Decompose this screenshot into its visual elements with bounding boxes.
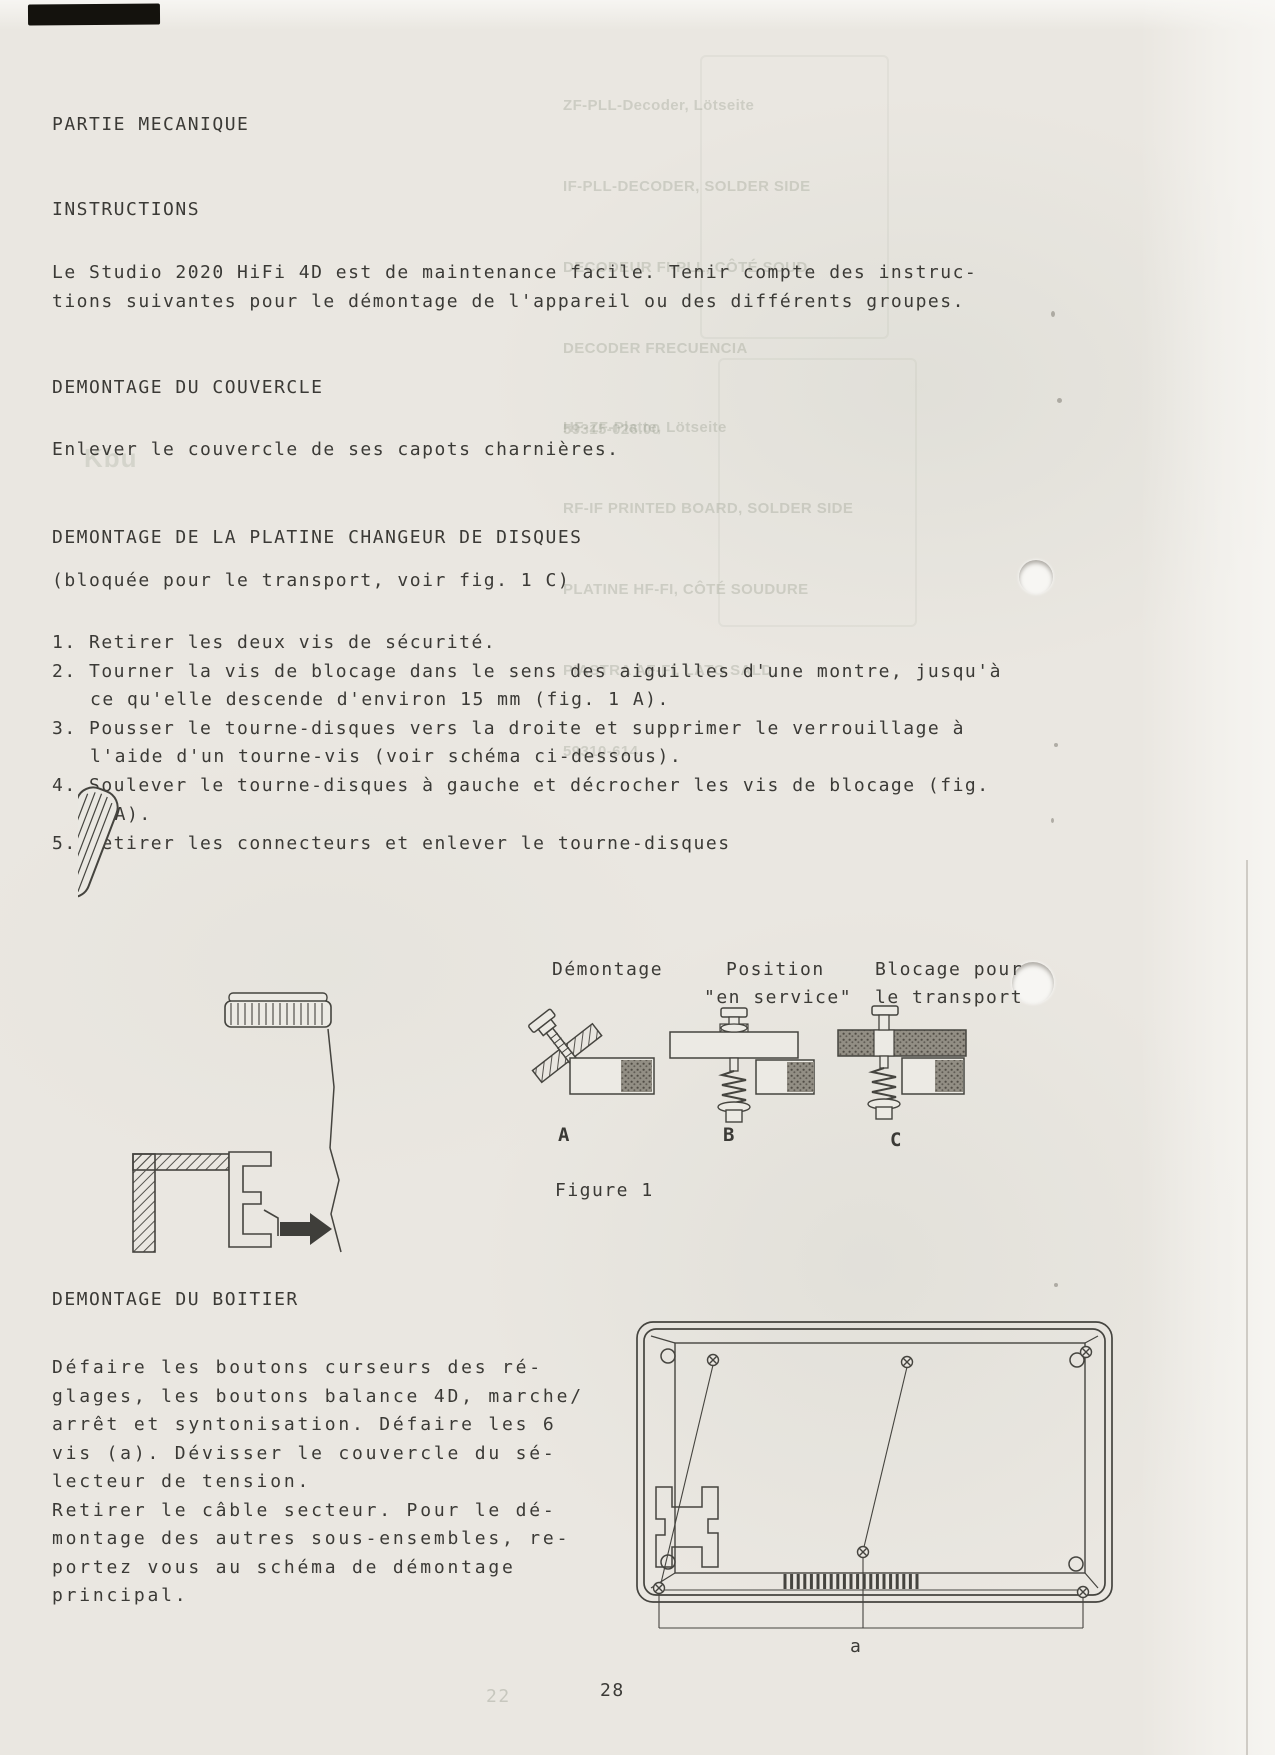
section-note: (bloquée pour le transport, voir fig. 1 … — [52, 570, 570, 592]
figure1-label-a: Démontage — [552, 959, 663, 981]
body-line: Enlever le couvercle de ses capots charn… — [52, 439, 620, 461]
body-line: glages, les boutons balance 4D, marche/ — [52, 1386, 584, 1408]
figure1-caption: Figure 1 — [555, 1180, 654, 1202]
bleedthrough-page-number: 22 — [486, 1686, 511, 1707]
bleedthrough-line: PLATINE HF-FI, CÔTÉ SOUDURE — [563, 576, 853, 603]
chassis-wall-section — [133, 1152, 278, 1252]
step-line: 3. Pousser le tourne-disques vers la dro… — [52, 718, 965, 740]
body-line: principal. — [52, 1585, 188, 1607]
figure1-label-b1: Position — [726, 959, 825, 981]
step-line: l'aide d'un tourne-vis (voir schéma ci-d… — [90, 746, 682, 768]
section-title-demontage-couvercle: DEMONTAGE DU COUVERCLE — [52, 377, 323, 399]
body-line: Défaire les boutons curseurs des ré- — [52, 1357, 543, 1379]
scan-edge-mark — [28, 4, 160, 26]
knurled-wheel-icon — [225, 993, 331, 1027]
body-line: tions suivantes pour le démontage de l'a… — [52, 291, 965, 313]
body-line: vis (a). Dévisser le couvercle du sé- — [52, 1443, 557, 1465]
screwdriver-unlock-figure — [78, 782, 368, 1262]
section-title-demontage-platine: DEMONTAGE DE LA PLATINE CHANGEUR DE DISQ… — [52, 527, 583, 549]
bleedthrough-line: HF-ZF-Platte, Lötseite — [563, 414, 853, 441]
figure1-label-c1: Blocage pour — [875, 959, 1023, 981]
page-edge-highlight — [1140, 0, 1275, 1755]
body-line: Le Studio 2020 HiFi 4D est de maintenanc… — [52, 262, 977, 284]
step-line: 1. Retirer les deux vis de sécurité. — [52, 632, 496, 654]
body-line: arrêt et syntonisation. Défaire les 6 — [52, 1414, 557, 1436]
screw-diagram-a — [509, 1002, 654, 1107]
body-line: portez vous au schéma de démontage — [52, 1557, 516, 1579]
chassis-rear-diagram — [618, 1312, 1118, 1662]
figure1-screw-diagrams — [498, 1002, 1018, 1140]
scan-speck — [1054, 1283, 1058, 1287]
scan-speck — [1051, 311, 1055, 317]
panel-edge-lines — [328, 1029, 341, 1252]
bleedthrough-line: IF-PLL-DECODER, SOLDER SIDE — [563, 173, 812, 200]
bleedthrough-line: DECODER FRECUENCIA — [563, 335, 812, 362]
body-line: Retirer le câble secteur. Pour le dé- — [52, 1500, 557, 1522]
scan-speck — [1051, 818, 1054, 823]
body-line: montage des autres sous-ensembles, re- — [52, 1528, 570, 1550]
page-number: 28 — [600, 1680, 625, 1702]
corner-holes — [661, 1349, 1084, 1571]
section-title-instructions: INSTRUCTIONS — [52, 199, 200, 221]
screwdriver-icon — [78, 782, 123, 1208]
screw-markers — [654, 1347, 1092, 1598]
body-line: lecteur de tension. — [52, 1471, 311, 1493]
step-line: ce qu'elle descende d'environ 15 mm (fig… — [90, 689, 670, 711]
punch-hole — [1019, 560, 1053, 594]
scan-top-fade — [0, 0, 1275, 30]
push-right-arrow-icon — [280, 1213, 332, 1245]
bleedthrough-line: ZF-PLL-Decoder, Lötseite — [563, 92, 812, 119]
screw-diagram-b — [670, 1008, 814, 1122]
section-title-demontage-boitier: DEMONTAGE DU BOITIER — [52, 1289, 299, 1311]
scan-speck — [1057, 398, 1062, 403]
bleedthrough-line: RF-IF PRINTED BOARD, SOLDER SIDE — [563, 495, 853, 522]
vent-slots — [785, 1574, 917, 1589]
step-line: 2. Tourner la vis de blocage dans le sen… — [52, 661, 1002, 683]
screw-diagram-c — [838, 1006, 966, 1119]
scan-speck — [1054, 743, 1058, 747]
section-title-partie-mecanique: PARTIE MECANIQUE — [52, 114, 249, 136]
scanned-manual-page: ZF-PLL-Decoder, Lötseite IF-PLL-DECODER,… — [0, 0, 1275, 1755]
page-edge-line — [1246, 860, 1248, 1755]
